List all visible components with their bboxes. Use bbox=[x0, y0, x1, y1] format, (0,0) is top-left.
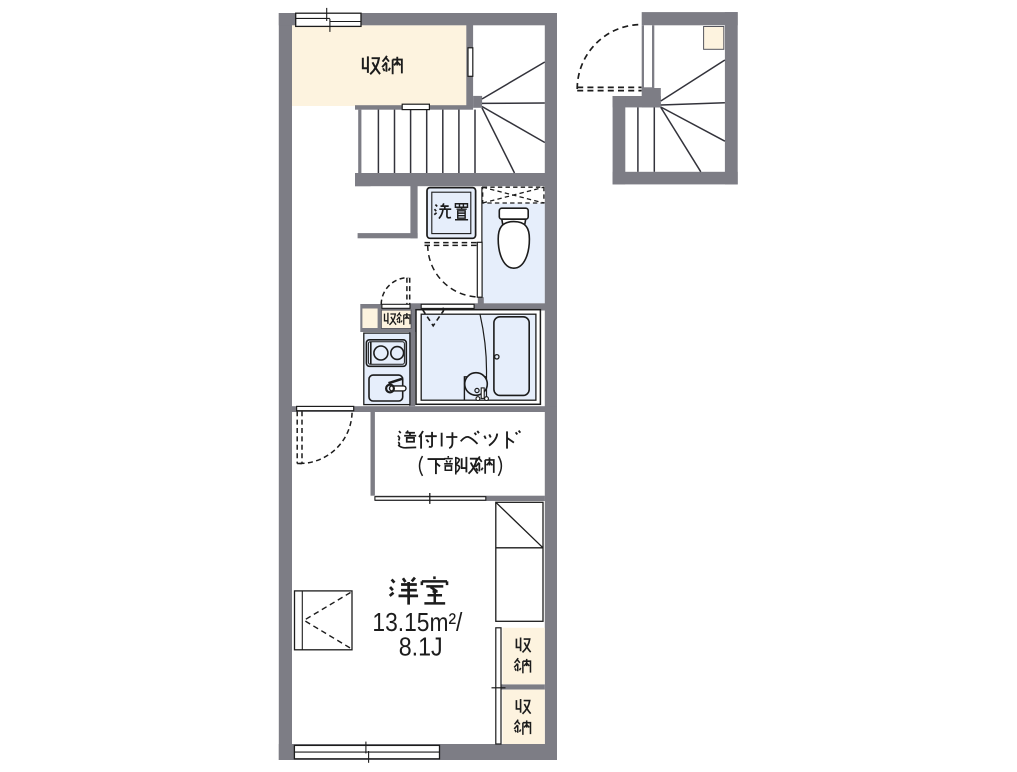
svg-text:8.1J: 8.1J bbox=[399, 632, 443, 662]
